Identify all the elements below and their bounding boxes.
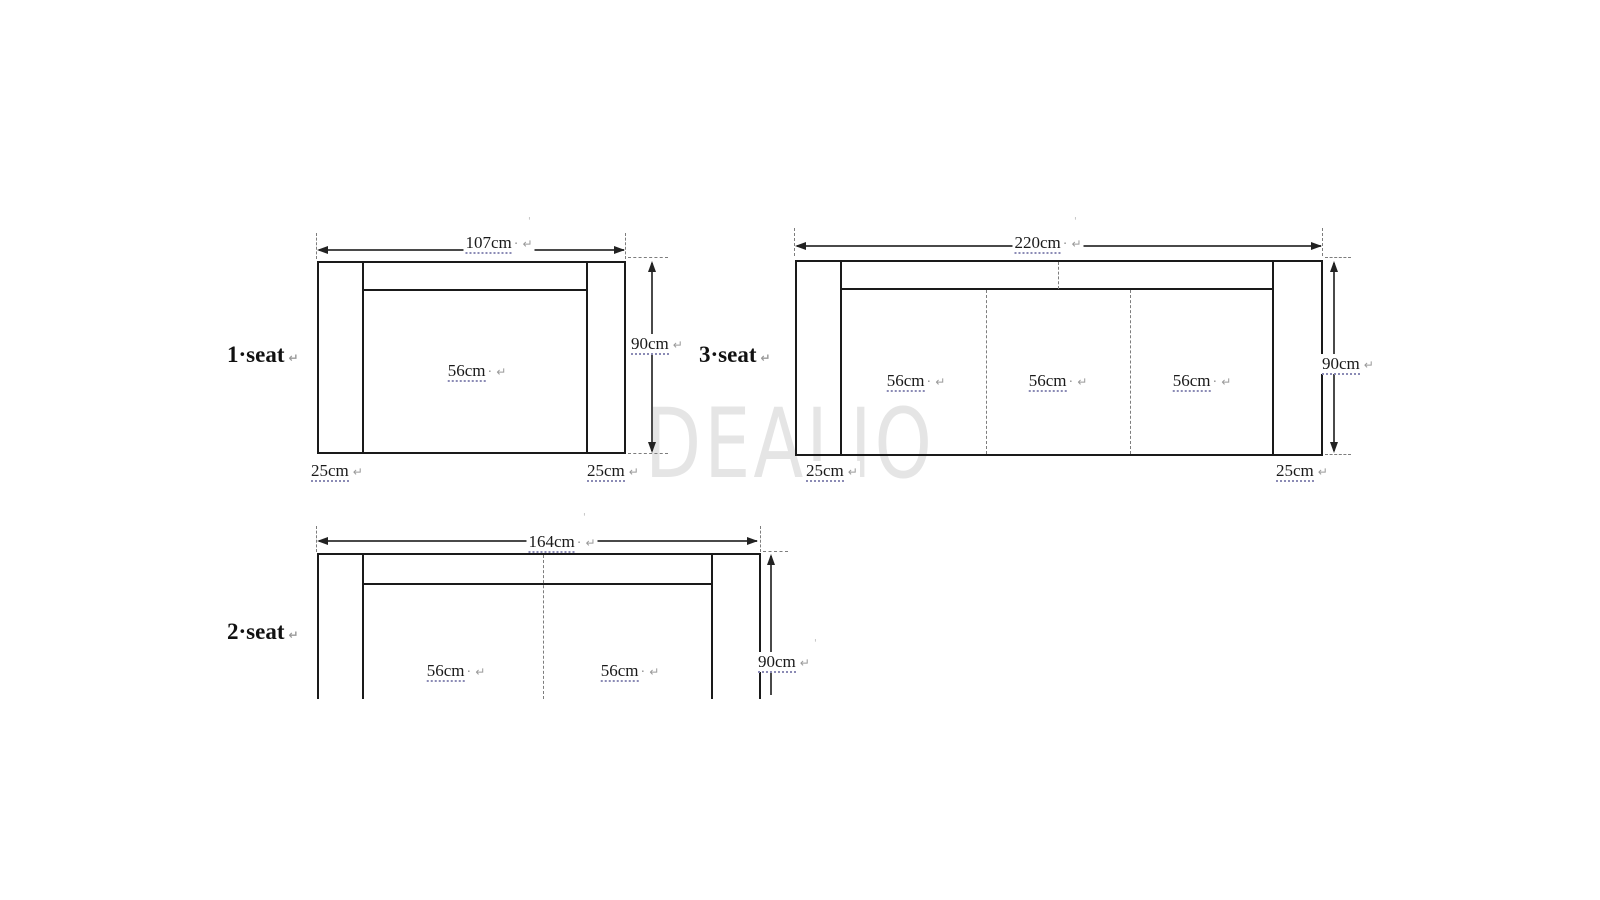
arrowhead-down-icon [648, 442, 656, 453]
width-value: 220cm [1014, 233, 1060, 254]
return-mark-icon: ↵ [1318, 465, 1328, 479]
arrowhead-left-icon [795, 242, 806, 250]
return-mark-icon: ↵ [1071, 237, 1081, 251]
space-dot-mark: · [641, 665, 646, 680]
space-dot-mark: · [488, 365, 493, 380]
space-dot-mark: · [514, 237, 519, 252]
extension-line [760, 526, 761, 552]
armrest-width-value: 25cm [1276, 461, 1314, 482]
height-value: 90cm [631, 334, 669, 355]
diagram-title-text: 2·seat [227, 619, 285, 644]
width-value: 164cm [528, 532, 574, 553]
height-dimension-label: 90cm↵ [629, 334, 685, 354]
arrowhead-down-icon [1330, 442, 1338, 453]
return-mark-icon: ↵ [629, 465, 639, 479]
diagram-title-2seat: 2·seat↵ [227, 619, 299, 645]
armrest-width-value: 25cm [806, 461, 844, 482]
return-mark-icon: ↵ [935, 375, 945, 389]
return-mark-icon: ↵ [1077, 375, 1087, 389]
space-dot-mark: · [1069, 375, 1074, 390]
extension-line [628, 453, 668, 454]
armrest-width-label-left: 25cm↵ [309, 461, 365, 481]
return-mark-icon: ↵ [800, 656, 810, 670]
backrest-center-line [1058, 262, 1059, 289]
sofa-outline [317, 553, 761, 699]
return-mark-icon: ↵ [673, 338, 683, 352]
backrest-line [362, 289, 588, 291]
diagram-title-text: 3·seat [699, 342, 757, 367]
seat-depth-value: 56cm [1029, 371, 1067, 392]
extension-line [1325, 454, 1351, 455]
seat-divider-line [986, 290, 987, 454]
arrowhead-up-icon [648, 261, 656, 272]
seat-depth-label: 56cm·↵ [599, 661, 662, 681]
return-mark-icon: ↵ [649, 665, 659, 679]
extension-line [1322, 228, 1323, 256]
seat-depth-label: 56cm·↵ [885, 371, 948, 391]
extension-line [628, 257, 668, 258]
width-value: 107cm [465, 233, 511, 254]
armrest-width-value: 25cm [311, 461, 349, 482]
arrowhead-left-icon [317, 537, 328, 545]
seat-divider-line [543, 555, 544, 699]
space-dot-mark: · [1213, 375, 1218, 390]
return-mark-icon: ↵ [522, 237, 532, 251]
armrest-line-left [362, 553, 364, 699]
backrest-line [840, 288, 1274, 290]
armrest-width-label-right: 25cm↵ [1274, 461, 1330, 481]
seat-depth-value: 56cm [448, 361, 486, 382]
seat-divider-line [1130, 290, 1131, 454]
space-dot-mark: · [927, 375, 932, 390]
sofa-dimensions-diagram-page: DEALIO ' ' ' ' 1·seat↵ 56cm·↵ 107cm·↵ [0, 0, 1600, 900]
seat-depth-value: 56cm [887, 371, 925, 392]
arrowhead-right-icon [747, 537, 758, 545]
space-dot-mark: · [467, 665, 472, 680]
extension-line [763, 551, 788, 552]
seat-depth-label: 56cm·↵ [425, 661, 488, 681]
height-dimension-label: 90cm↵ [756, 652, 812, 672]
return-mark-icon: ↵ [1221, 375, 1231, 389]
extension-line [625, 233, 626, 259]
return-mark-icon: ↵ [289, 351, 299, 365]
armrest-width-label-right: 25cm↵ [585, 461, 641, 481]
armrest-line-right [711, 553, 713, 699]
armrest-width-value: 25cm [587, 461, 625, 482]
seat-depth-value: 56cm [601, 661, 639, 682]
seat-depth-value: 56cm [427, 661, 465, 682]
diagram-title-text: 1·seat [227, 342, 285, 367]
arrowhead-up-icon [767, 554, 775, 565]
seat-depth-label: 56cm·↵ [446, 361, 509, 381]
stray-format-mark: ' [528, 216, 531, 227]
arrowhead-right-icon [1311, 242, 1322, 250]
return-mark-icon: ↵ [585, 536, 595, 550]
height-dimension-label: 90cm↵ [1320, 354, 1376, 374]
space-dot-mark: · [577, 536, 582, 551]
space-dot-mark: · [1063, 237, 1068, 252]
armrest-width-label-left: 25cm↵ [804, 461, 860, 481]
width-dimension-label: 107cm·↵ [463, 233, 534, 253]
height-dimension-line [770, 556, 772, 695]
seat-depth-value: 56cm [1173, 371, 1211, 392]
width-dimension-label: 220cm·↵ [1012, 233, 1083, 253]
return-mark-icon: ↵ [848, 465, 858, 479]
diagram-title-3seat: 3·seat↵ [699, 342, 771, 368]
return-mark-icon: ↵ [1364, 358, 1374, 372]
arrowhead-left-icon [317, 246, 328, 254]
height-dimension-line [651, 263, 653, 451]
backrest-line [362, 583, 713, 585]
return-mark-icon: ↵ [496, 365, 506, 379]
seat-depth-label: 56cm·↵ [1027, 371, 1090, 391]
height-value: 90cm [758, 652, 796, 673]
stray-format-mark: ' [1074, 216, 1077, 227]
return-mark-icon: ↵ [289, 628, 299, 642]
return-mark-icon: ↵ [353, 465, 363, 479]
width-dimension-label: 164cm·↵ [526, 532, 597, 552]
arrowhead-up-icon [1330, 261, 1338, 272]
return-mark-icon: ↵ [761, 351, 771, 365]
arrowhead-right-icon [614, 246, 625, 254]
height-value: 90cm [1322, 354, 1360, 375]
diagram-title-1seat: 1·seat↵ [227, 342, 299, 368]
stray-format-mark: ' [583, 512, 586, 523]
extension-line [1325, 257, 1351, 258]
return-mark-icon: ↵ [475, 665, 485, 679]
stray-format-mark: ' [814, 638, 817, 649]
seat-depth-label: 56cm·↵ [1171, 371, 1234, 391]
